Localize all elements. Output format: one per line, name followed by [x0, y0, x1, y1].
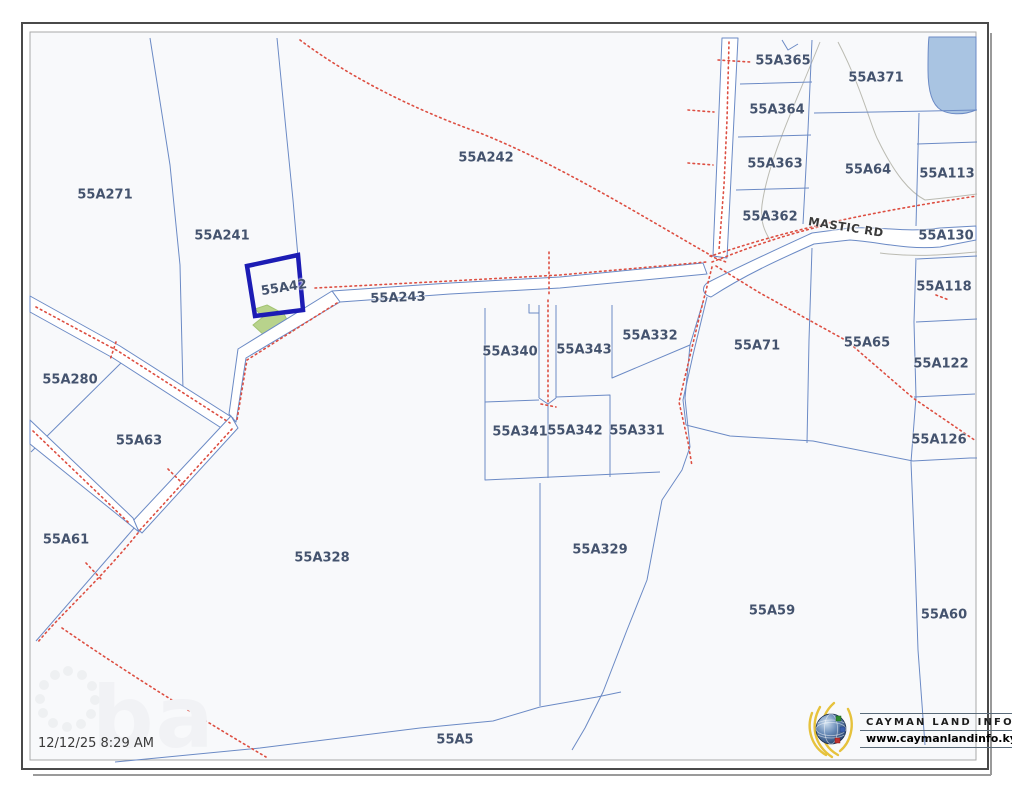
parcel-label-55a328: 55A328 — [294, 551, 349, 566]
parcel-boundaries — [31, 38, 977, 762]
roads — [30, 38, 976, 533]
parcel-label-55a5: 55A5 — [436, 733, 473, 748]
cayman-land-info-logo: CAYMAN LAND INFO www.caymanlandinfo.ky — [804, 699, 1012, 761]
logo-text-block: CAYMAN LAND INFO www.caymanlandinfo.ky — [860, 713, 1012, 748]
road-from-west — [30, 296, 233, 431]
parcel-label-55a371: 55A371 — [848, 71, 903, 86]
timestamp: 12/12/25 8:29 AM — [38, 736, 154, 751]
parcel-label-55a243: 55A243 — [370, 290, 426, 307]
parcel-label-55a341: 55A341 — [492, 425, 547, 440]
parcel-label-55a65: 55A65 — [844, 336, 890, 351]
logo-title: CAYMAN LAND INFO — [860, 713, 1012, 731]
parcel-label-55a130: 55A130 — [918, 229, 973, 244]
road-label-mastic-rd: MASTIC RD — [807, 214, 884, 240]
parcel-label-55a331: 55A331 — [609, 424, 664, 439]
parcel-label-55a365: 55A365 — [755, 54, 810, 69]
parcel-label-55a340: 55A340 — [482, 345, 537, 360]
parcel-label-55a64: 55A64 — [845, 163, 891, 178]
parcel-label-55a126: 55A126 — [911, 433, 966, 448]
parcel-label-55a343: 55A343 — [556, 343, 611, 358]
parcel-label-55a329: 55A329 — [572, 543, 627, 558]
parcel-label-55a59: 55A59 — [749, 604, 795, 619]
parcel-label-55a71: 55A71 — [734, 339, 780, 354]
parcel-label-55a113: 55A113 — [919, 167, 974, 182]
parcel-label-55a332: 55A332 — [622, 329, 677, 344]
parcel-label-55a118: 55A118 — [916, 280, 971, 295]
parcel-label-55a122: 55A122 — [913, 357, 968, 372]
parcel-label-55a60: 55A60 — [921, 608, 967, 623]
parcel-label-55a362: 55A362 — [742, 210, 797, 225]
parcel-label-55a242: 55A242 — [458, 151, 513, 166]
map-paper — [30, 32, 976, 760]
parcel-label-55a280: 55A280 — [42, 373, 97, 388]
watermark-text: ba — [92, 668, 216, 768]
parcel-label-55a63: 55A63 — [116, 434, 162, 449]
frame-shadow — [33, 33, 991, 775]
loading-spinner-watermark — [35, 666, 100, 732]
parcel-label-55a271: 55A271 — [77, 188, 132, 203]
parcel-label-55a364: 55A364 — [749, 103, 804, 118]
parcel-label-55a363: 55A363 — [747, 157, 802, 172]
water-polygon — [928, 37, 976, 114]
globe-icon — [804, 699, 858, 761]
road-north — [713, 38, 738, 258]
dotted-tracks — [33, 40, 977, 757]
map-outer-frame — [22, 23, 988, 769]
parcel-label-55a61: 55A61 — [43, 533, 89, 548]
parcel-label-55a342: 55A342 — [547, 424, 602, 439]
logo-url: www.caymanlandinfo.ky — [860, 731, 1012, 748]
map-window: ba 55A27155A24155A24255A4255A24355A36555… — [0, 0, 1012, 794]
parcel-label-55a241: 55A241 — [194, 229, 249, 244]
